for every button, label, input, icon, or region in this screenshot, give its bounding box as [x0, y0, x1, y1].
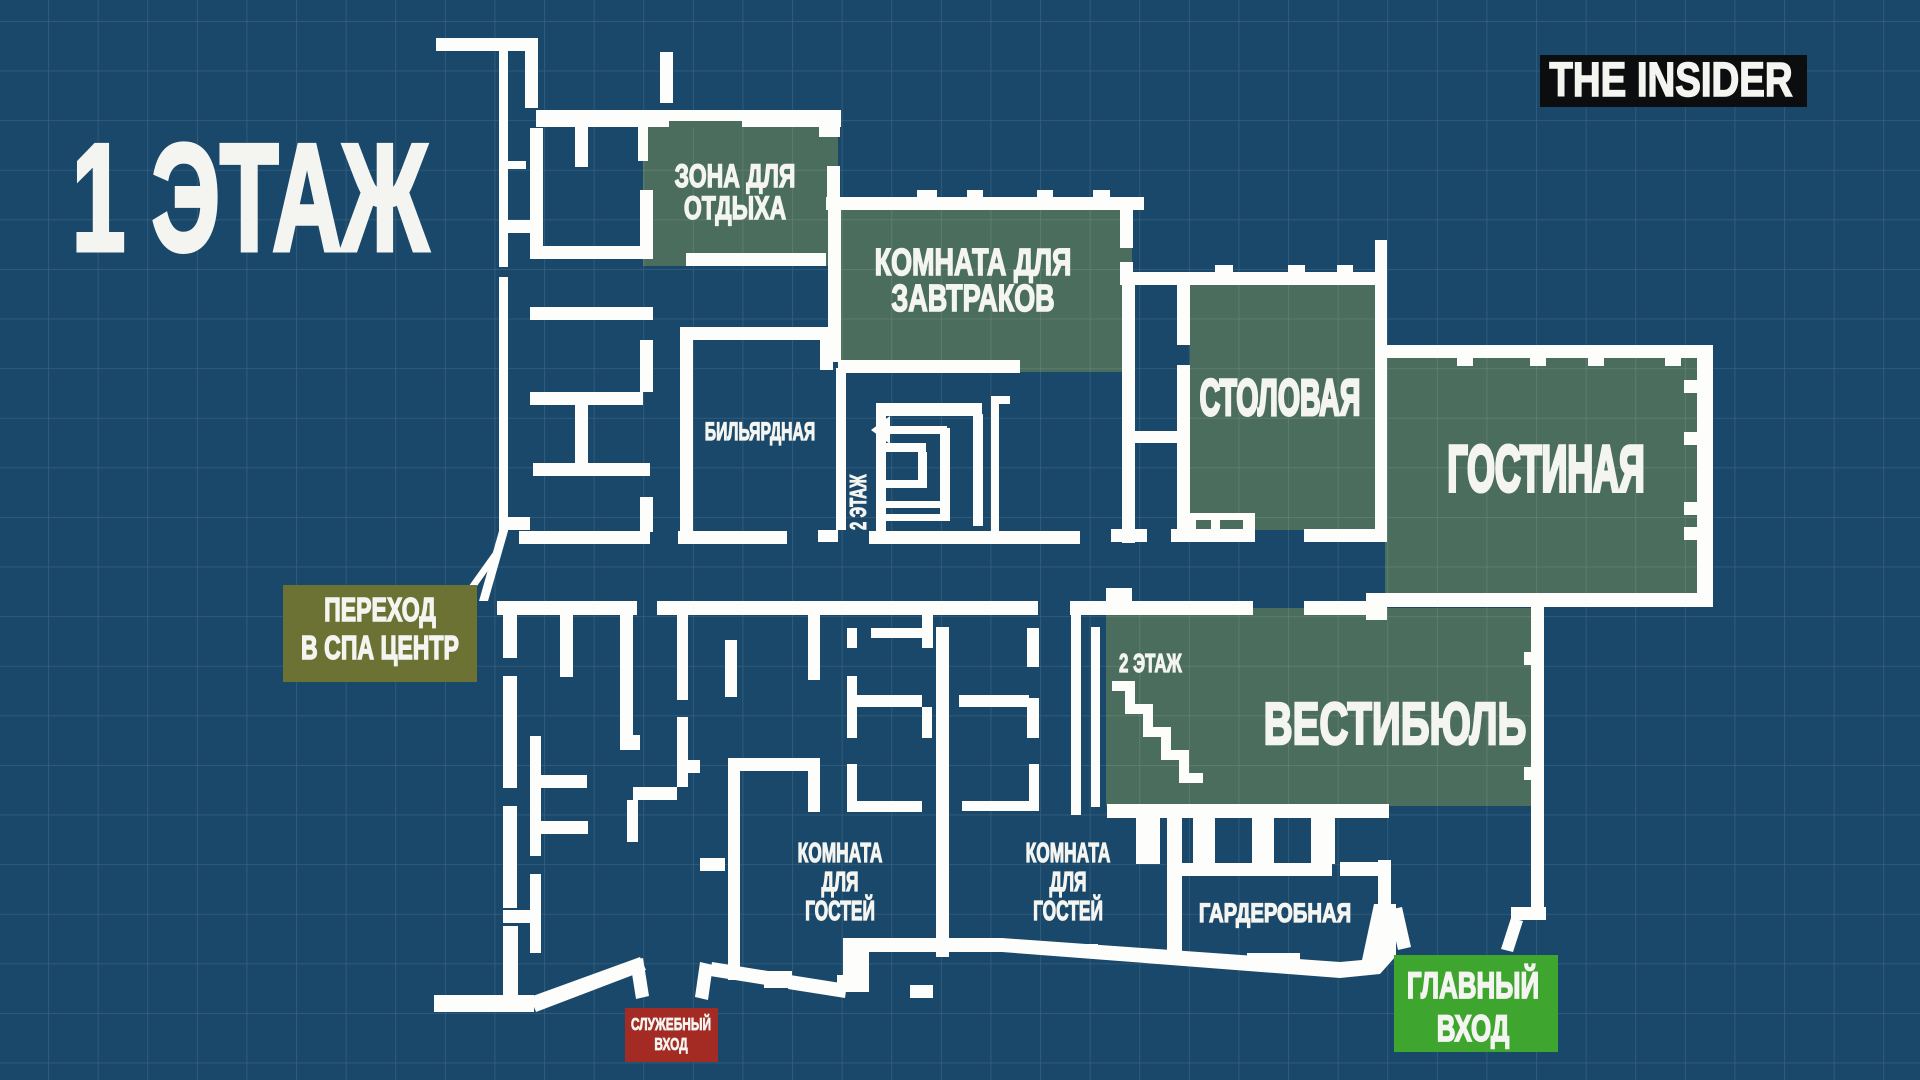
- svg-text:ГОСТЕЙ: ГОСТЕЙ: [805, 894, 875, 926]
- svg-text:КОМНАТА: КОМНАТА: [798, 837, 883, 868]
- svg-text:ГАРДЕРОБНАЯ: ГАРДЕРОБНАЯ: [1199, 898, 1351, 929]
- svg-text:ГЛАВНЫЙ: ГЛАВНЫЙ: [1407, 964, 1539, 1006]
- svg-text:СЛУЖЕБНЫЙ: СЛУЖЕБНЫЙ: [631, 1013, 711, 1034]
- svg-text:ГОСТИНАЯ: ГОСТИНАЯ: [1447, 434, 1644, 506]
- svg-text:ВХОД: ВХОД: [654, 1035, 687, 1055]
- svg-text:В СПА ЦЕНТР: В СПА ЦЕНТР: [301, 630, 459, 667]
- svg-text:ВХОД: ВХОД: [1437, 1007, 1510, 1049]
- svg-text:2 ЭТАЖ: 2 ЭТАЖ: [1119, 648, 1182, 678]
- svg-text:ГОСТЕЙ: ГОСТЕЙ: [1033, 894, 1103, 926]
- svg-text:ЗОНА ДЛЯ: ЗОНА ДЛЯ: [675, 158, 796, 194]
- svg-text:ЗАВТРАКОВ: ЗАВТРАКОВ: [891, 276, 1054, 319]
- svg-text:ПЕРЕХОД: ПЕРЕХОД: [324, 592, 436, 629]
- svg-text:1 ЭТАЖ: 1 ЭТАЖ: [72, 112, 429, 282]
- svg-text:2 ЭТАЖ: 2 ЭТАЖ: [846, 474, 872, 530]
- svg-text:КОМНАТА: КОМНАТА: [1026, 837, 1111, 868]
- svg-text:ДЛЯ: ДЛЯ: [821, 866, 858, 897]
- svg-text:ДЛЯ: ДЛЯ: [1049, 866, 1086, 897]
- svg-text:СТОЛОВАЯ: СТОЛОВАЯ: [1200, 369, 1361, 426]
- svg-text:THE INSIDER: THE INSIDER: [1549, 54, 1792, 107]
- svg-text:ОТДЫХА: ОТДЫХА: [684, 190, 786, 226]
- svg-text:БИЛЬЯРДНАЯ: БИЛЬЯРДНАЯ: [705, 418, 815, 446]
- svg-text:ВЕСТИБЮЛЬ: ВЕСТИБЮЛЬ: [1264, 690, 1527, 757]
